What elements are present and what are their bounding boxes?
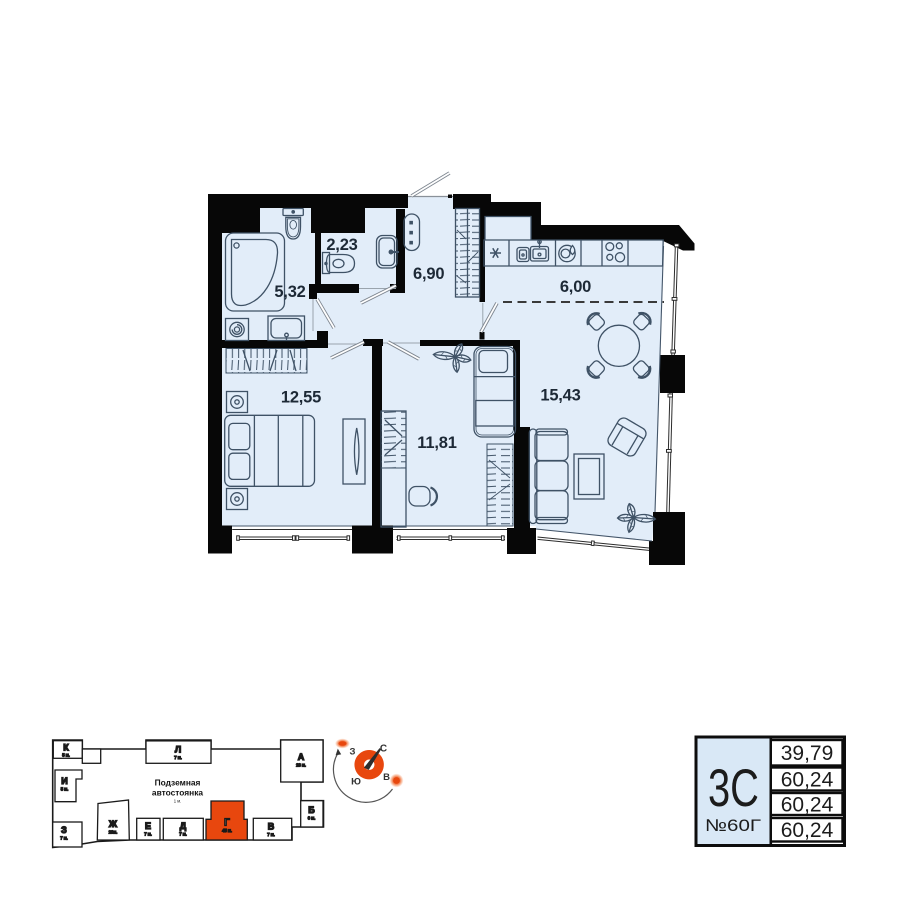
svg-text:5 м.: 5 м. bbox=[61, 787, 69, 792]
svg-text:6,00: 6,00 bbox=[560, 278, 591, 296]
svg-text:5 м.: 5 м. bbox=[62, 753, 70, 758]
svg-text:12,55: 12,55 bbox=[281, 389, 321, 407]
svg-text:45 м.: 45 м. bbox=[222, 828, 232, 833]
svg-text:6 м.: 6 м. bbox=[308, 816, 316, 821]
svg-text:7 м.: 7 м. bbox=[144, 832, 152, 837]
svg-text:6,90: 6,90 bbox=[413, 265, 444, 283]
svg-text:№60Г: №60Г bbox=[705, 816, 761, 835]
svg-text:11,81: 11,81 bbox=[417, 434, 456, 452]
svg-text:Ж: Ж bbox=[108, 819, 118, 829]
svg-text:60,24: 60,24 bbox=[781, 769, 834, 792]
svg-text:29м.: 29м. bbox=[109, 830, 118, 835]
svg-text:Л: Л bbox=[175, 745, 181, 755]
svg-text:А: А bbox=[298, 752, 305, 762]
svg-text:23 м.: 23 м. bbox=[296, 763, 306, 768]
svg-text:Г: Г bbox=[224, 818, 230, 829]
svg-text:1 м.: 1 м. bbox=[174, 799, 182, 804]
svg-text:Е: Е bbox=[145, 821, 151, 831]
svg-text:15,43: 15,43 bbox=[540, 387, 580, 405]
svg-text:7 м.: 7 м. bbox=[179, 832, 187, 837]
svg-text:С: С bbox=[380, 744, 387, 755]
svg-text:Ю: Ю bbox=[351, 777, 361, 788]
svg-text:5,32: 5,32 bbox=[274, 283, 305, 301]
svg-text:60,24: 60,24 bbox=[781, 819, 834, 842]
svg-text:7 м.: 7 м. bbox=[60, 836, 68, 841]
svg-text:2,23: 2,23 bbox=[326, 236, 357, 254]
svg-text:7 м.: 7 м. bbox=[267, 832, 275, 837]
svg-text:Д: Д bbox=[180, 821, 187, 831]
svg-text:З: З bbox=[350, 747, 356, 758]
svg-text:автостоянка: автостоянка bbox=[152, 788, 203, 798]
svg-text:39,79: 39,79 bbox=[781, 742, 834, 765]
svg-text:К: К bbox=[63, 743, 69, 753]
svg-text:60,24: 60,24 bbox=[781, 794, 834, 817]
svg-text:З: З bbox=[61, 825, 67, 835]
svg-text:Б: Б bbox=[308, 805, 315, 815]
svg-text:Подземная: Подземная bbox=[155, 778, 201, 788]
svg-text:В: В bbox=[268, 822, 275, 832]
svg-text:3С: 3С bbox=[708, 759, 759, 818]
svg-text:И: И bbox=[61, 776, 67, 786]
svg-text:В: В bbox=[383, 772, 390, 783]
svg-text:7 м.: 7 м. bbox=[174, 755, 182, 760]
